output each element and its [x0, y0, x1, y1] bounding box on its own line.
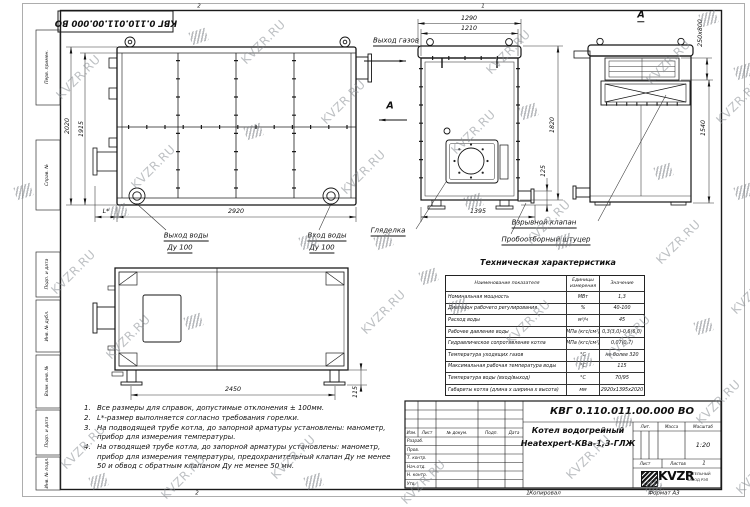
- tech-cell-unit: °С: [567, 362, 600, 373]
- tech-table-row: Расход воды м³/ч 45: [446, 315, 644, 327]
- label-water-outlet: Выход воды: [164, 233, 209, 242]
- note-number: 2.: [84, 414, 97, 423]
- tech-cell-value: 2920х1395х2020: [600, 385, 644, 396]
- tb-col-header: № докум.: [447, 430, 468, 434]
- tech-cell-unit: м³/ч: [567, 315, 600, 326]
- dim-front-stub: 125: [540, 165, 546, 177]
- tech-cell-unit: МВт: [567, 292, 600, 303]
- sidebar-label: Подп. и дата: [46, 417, 51, 448]
- label-explosion-valve: Взрывной клапан: [512, 220, 577, 229]
- tb-sheets-value: 1: [702, 461, 706, 467]
- sidebar-label: Подп. и дата: [46, 259, 51, 290]
- tech-table-row: Рабочее давление воды МПа (кгс/см²) 0,3(…: [446, 327, 644, 339]
- tb-col-header: Дата: [509, 430, 520, 434]
- sidebar-label: Взам. инв. №: [46, 366, 51, 397]
- tech-cell-unit: %: [567, 304, 600, 315]
- tb-col-header: Изм.: [407, 430, 417, 434]
- dim-rear-duct: 250x800: [698, 19, 704, 47]
- tech-cell-unit: МПа (кгс/см²): [567, 338, 600, 349]
- sidebar-label: Инв. № дубл.: [46, 311, 51, 342]
- tech-col-name: Наименование показателя: [446, 276, 567, 291]
- section-arrow-letter: А: [386, 101, 393, 111]
- tech-cell-name: Диапазон рабочего регулирования: [446, 304, 567, 315]
- tech-table-header: Наименование показателя Единицы измерени…: [446, 276, 644, 292]
- tech-col-value: Значение: [600, 276, 644, 291]
- note-text: L*-размер выполняется согласно требовани…: [97, 414, 394, 423]
- tech-cell-name: Номинальная мощность: [446, 292, 567, 303]
- kvzr-logo-icon: [641, 471, 658, 487]
- tech-table-body: Номинальная мощность МВт 1,3 Диапазон ра…: [446, 292, 644, 395]
- tech-table-row: Максимальная рабочая температура воды °С…: [446, 362, 644, 374]
- tb-row-label: Утв.: [407, 482, 416, 486]
- tech-cell-value: 115: [600, 362, 644, 373]
- tech-cell-value: 70/95: [600, 373, 644, 384]
- dim-plan-foot: 115: [353, 386, 359, 398]
- tech-table-row: Гидравлическое сопротивление котла МПа (…: [446, 338, 644, 350]
- tech-table-row: Диапазон рабочего регулирования % 40-100: [446, 304, 644, 316]
- label-sampling-fitting: Пробоотборный штуцер: [501, 237, 590, 246]
- tech-cell-value: 1,3: [600, 292, 644, 303]
- tb-sheet-label: Лист: [640, 461, 651, 465]
- tech-cell-name: Температура уходящих газов: [446, 350, 567, 361]
- note-item: 1. Все размеры для справок, допустимые о…: [84, 404, 394, 413]
- label-sight-glass: Гляделка: [371, 228, 406, 237]
- dim-side-height-inner: 1915: [79, 121, 85, 137]
- dim-front-width-inner: 1210: [461, 25, 477, 31]
- label-water-inlet-dn: Ду 100: [309, 245, 334, 254]
- sidebar-label: Инв. № подл.: [46, 457, 51, 488]
- tb-product-name-line1: Котел водогрейный: [532, 427, 625, 435]
- tb-row-label: Нач.отд.: [407, 465, 426, 469]
- tb-row-label: Н. контр.: [407, 473, 427, 477]
- tb-scale-value: 1:20: [696, 442, 711, 449]
- dim-front-base: 1395: [470, 209, 486, 215]
- dim-rear-height: 1540: [700, 120, 706, 136]
- sidebar-label: Справ. №: [46, 164, 51, 186]
- tech-table-row: Габариты котла (длина х ширина х высота)…: [446, 385, 644, 396]
- dim-plan-feet-span: 2450: [225, 387, 241, 393]
- tb-col-header: Подп.: [485, 430, 498, 434]
- tb-col-header: Лист: [422, 430, 433, 434]
- top-stamp-doc-number: КВГ 0.110.011.00.000 ВО: [54, 17, 176, 26]
- tb-copied-label: Копировал: [529, 491, 560, 497]
- tb-row-label: Т. контр.: [407, 456, 426, 460]
- tech-cell-value: 0,3(3,0)-0,6(6,0): [600, 327, 644, 338]
- zone-number: 2: [197, 4, 201, 10]
- note-text: На подводящей трубе котла, до запорной а…: [97, 424, 394, 442]
- zone-number: 1: [481, 4, 485, 10]
- tech-cell-name: Габариты котла (длина х ширина х высота): [446, 385, 567, 396]
- label-water-outlet-dn: Ду 100: [167, 245, 192, 254]
- tech-cell-value: 45: [600, 315, 644, 326]
- zone-number: 2: [195, 491, 199, 497]
- notes-list: 1. Все размеры для справок, допустимые о…: [84, 404, 394, 472]
- drawing-sheet: { "watermark": {"text": "KVZR.RU"}, "fra…: [0, 0, 750, 500]
- tb-doc-number: КВГ 0.110.011.00.000 ВО: [550, 407, 694, 417]
- tb-sheets-label: Листов: [670, 461, 686, 465]
- tech-cell-name: Рабочее давление воды: [446, 327, 567, 338]
- dim-side-height-outer: 2020: [65, 118, 71, 134]
- tech-col-unit: Единицы измерения: [567, 276, 600, 291]
- tb-scale-label: Масштаб: [693, 424, 713, 428]
- note-text: Все размеры для справок, допустимые откл…: [97, 404, 394, 413]
- label-water-inlet: Вход воды: [307, 233, 346, 242]
- tb-lit-label: Лит.: [641, 424, 651, 428]
- tb-format-label: Формат А3: [648, 491, 679, 497]
- tech-cell-name: Гидравлическое сопротивление котла: [446, 338, 567, 349]
- kvzr-logo-subtitle: КОТЕЛЬНЫЙ: [687, 473, 711, 477]
- tech-cell-name: Расход воды: [446, 315, 567, 326]
- note-number: 1.: [84, 404, 97, 413]
- view-a-letter: А: [637, 10, 644, 22]
- tech-table-title: Техническая характеристика: [480, 259, 616, 267]
- tech-cell-value: 40-100: [600, 304, 644, 315]
- note-item: 4. На отводящей трубе котла, до запорной…: [84, 443, 394, 471]
- tech-table: Наименование показателя Единицы измерени…: [445, 275, 645, 396]
- label-gas-outlet: Выход газов: [373, 38, 419, 47]
- tech-table-row: Температура воды (вход/выход) °С 70/95: [446, 373, 644, 385]
- note-number: 3.: [84, 424, 97, 442]
- tb-row-label: Пров.: [407, 448, 419, 452]
- note-number: 4.: [84, 443, 97, 471]
- tech-cell-unit: мм: [567, 385, 600, 396]
- tech-cell-name: Максимальная рабочая температура воды: [446, 362, 567, 373]
- tech-cell-unit: °С: [567, 350, 600, 361]
- tb-row-label: Разраб.: [407, 439, 423, 443]
- tech-table-row: Номинальная мощность МВт 1,3: [446, 292, 644, 304]
- tb-product-name-line2: Heatexpert-КВа-1,3-ГЛЖ: [521, 440, 636, 448]
- tech-cell-unit: °С: [567, 373, 600, 384]
- tech-table-row: Температура уходящих газов °С не более 3…: [446, 350, 644, 362]
- note-item: 3. На подводящей трубе котла, до запорно…: [84, 424, 394, 442]
- note-text: На отводящей трубе котла, до запорной ар…: [97, 443, 394, 471]
- tech-cell-unit: МПа (кгс/см²): [567, 327, 600, 338]
- dim-front-height: 1820: [550, 117, 556, 133]
- tech-cell-value: 0,07(0,7): [600, 338, 644, 349]
- tb-mass-label: Масса: [665, 424, 678, 428]
- tech-cell-name: Температура воды (вход/выход): [446, 373, 567, 384]
- dim-side-width: 2920: [228, 209, 244, 215]
- tech-cell-value: не более 320: [600, 350, 644, 361]
- dim-burner-length: L*: [103, 209, 110, 215]
- note-item: 2. L*-размер выполняется согласно требов…: [84, 414, 394, 423]
- kvzr-logo-subtitle: ЗАВОД РЭП: [687, 479, 708, 483]
- dim-front-width-outer: 1290: [461, 15, 477, 21]
- sidebar-label: Перв. примен.: [46, 50, 51, 84]
